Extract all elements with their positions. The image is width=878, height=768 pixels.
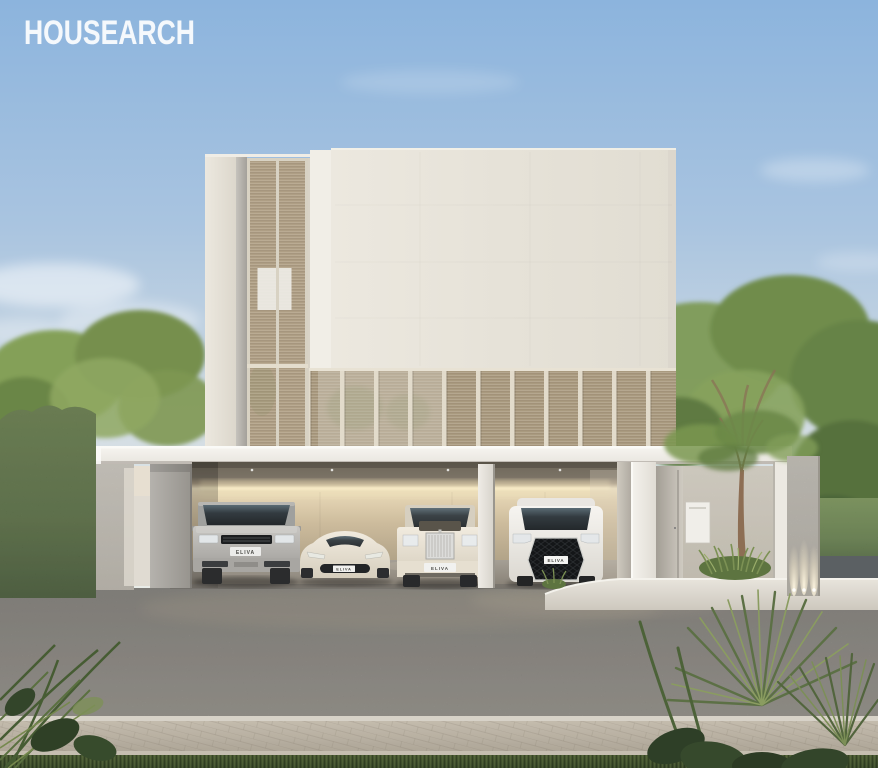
license-plate-text: ELIVA (431, 566, 449, 571)
villa-exterior-render: ELIVA ELIVA ELIVA (0, 0, 878, 768)
entry-platform (545, 579, 878, 610)
lobby-wall (617, 462, 631, 588)
sidewalk (0, 716, 878, 755)
license-plate-text: ELIVA (236, 550, 255, 556)
textured-pier (787, 456, 820, 596)
left-wing (96, 464, 192, 590)
housearch-watermark-logo: HOUSEARCH (24, 16, 195, 50)
uplights (789, 529, 819, 596)
villa-building (205, 148, 676, 462)
car-minivan: ELIVA (506, 498, 606, 589)
gray-pillar (150, 464, 192, 588)
hedge-left (0, 405, 96, 598)
car-sedan: ELIVA (395, 505, 485, 589)
villa-tower (205, 154, 310, 462)
tower-louver-window (247, 158, 308, 446)
villa-top-volume (310, 148, 676, 368)
louver-band (309, 368, 676, 446)
license-plate-text: ELIVA (336, 567, 351, 572)
entry-column (631, 462, 656, 592)
scene-canvas: ELIVA ELIVA ELIVA (0, 0, 878, 768)
license-plate-text: ELIVA (548, 558, 565, 563)
corner-white-edge (773, 462, 787, 592)
garage-column (478, 464, 495, 588)
entry-recess (656, 466, 683, 584)
